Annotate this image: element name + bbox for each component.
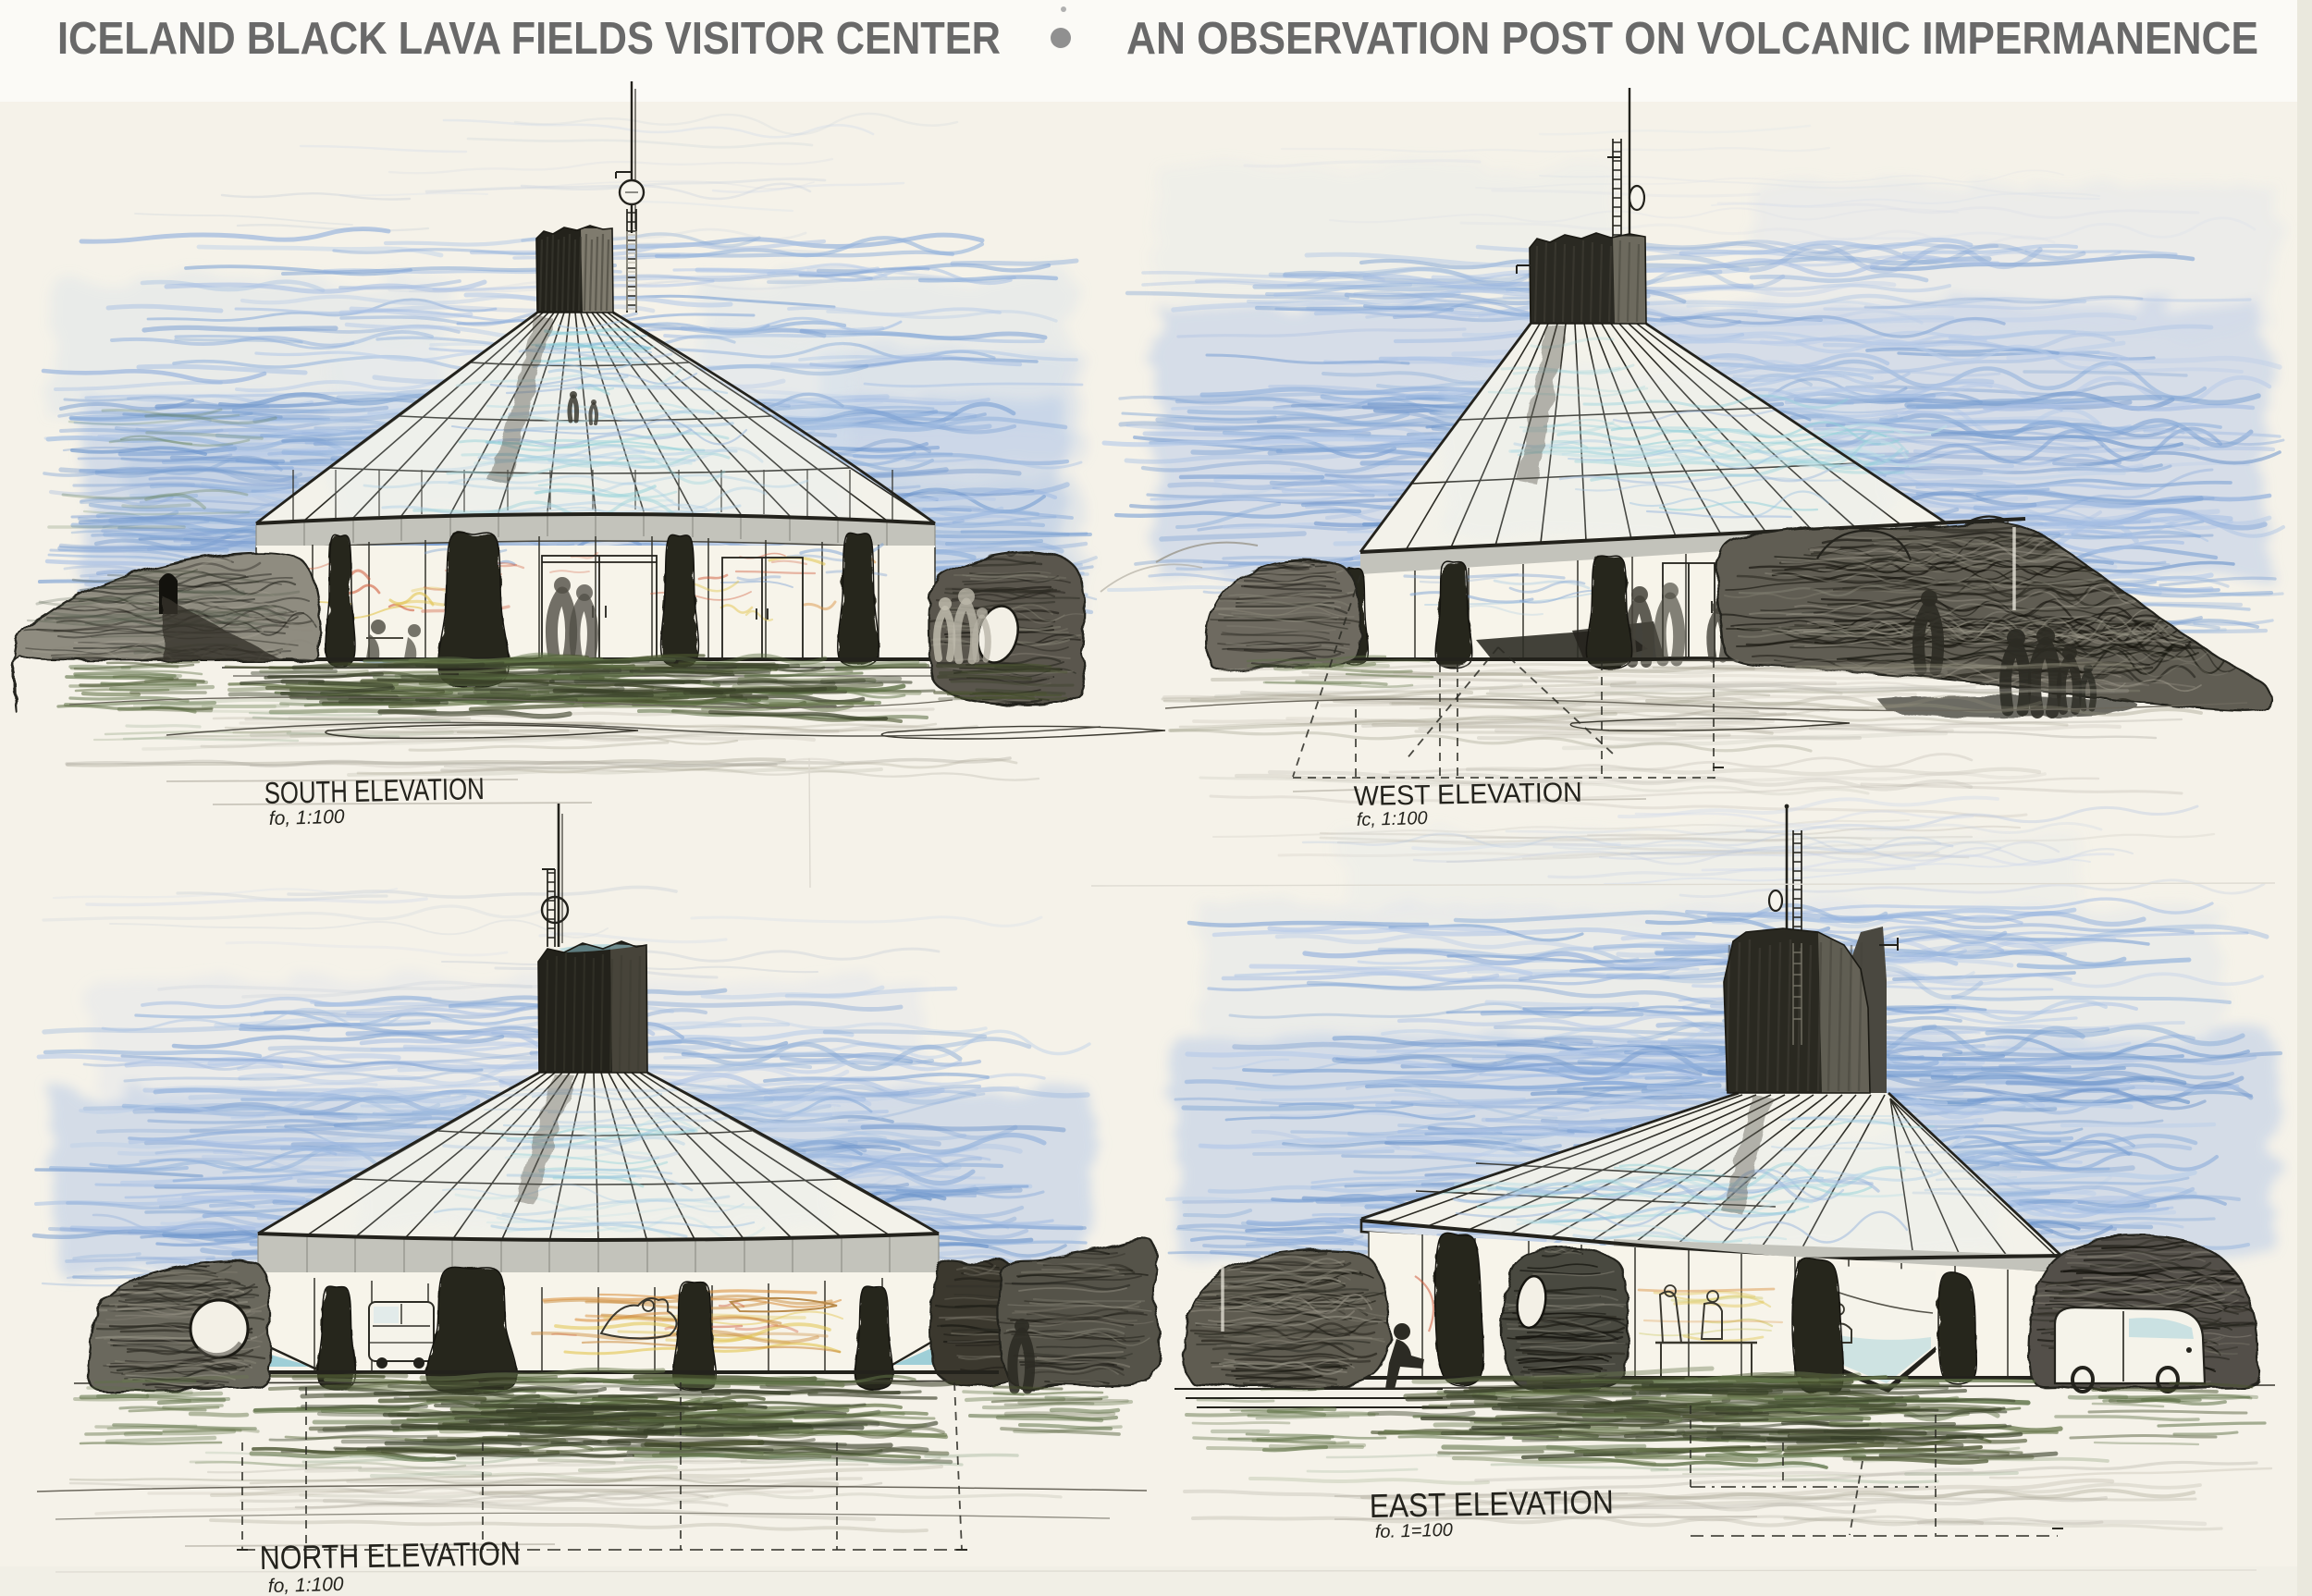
svg-text:fc, 1:100: fc, 1:100	[1357, 808, 1428, 830]
svg-text:ICELAND BLACK LAVA FIELDS VISI: ICELAND BLACK LAVA FIELDS VISITOR CENTER	[57, 14, 1001, 64]
svg-text:fo, 1:100: fo, 1:100	[268, 1574, 345, 1596]
svg-text:WEST ELEVATION: WEST ELEVATION	[1354, 778, 1583, 812]
svg-text:AN OBSERVATION POST ON VOLCANI: AN OBSERVATION POST ON VOLCANIC IMPERMAN…	[1126, 14, 2258, 64]
svg-text:SOUTH ELEVATION: SOUTH ELEVATION	[264, 771, 485, 810]
svg-text:fo. 1=100: fo. 1=100	[1375, 1520, 1454, 1542]
svg-text:fo, 1:100: fo, 1:100	[269, 806, 346, 829]
svg-text:EAST ELEVATION: EAST ELEVATION	[1369, 1482, 1614, 1525]
svg-text:NORTH ELEVATION: NORTH ELEVATION	[259, 1534, 521, 1577]
